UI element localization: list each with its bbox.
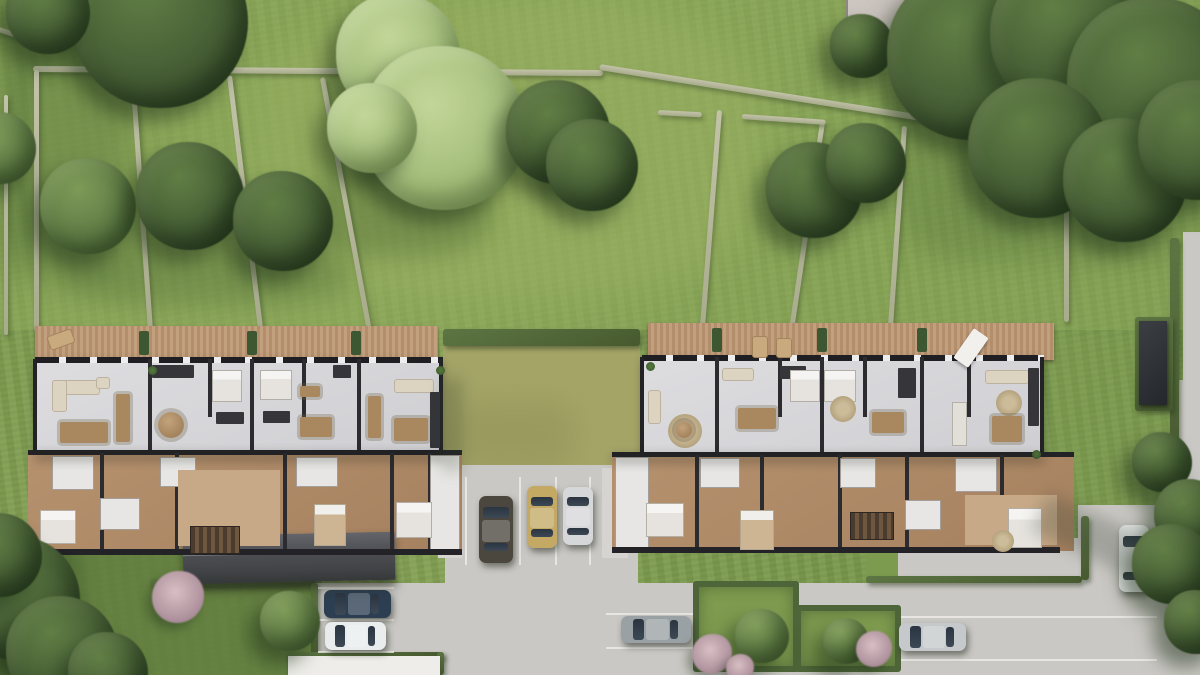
hedge	[443, 329, 640, 346]
building-right-bathroom	[615, 457, 649, 549]
kdark-furniture	[263, 411, 290, 423]
stairs-furniture	[190, 526, 240, 554]
site-plan-render	[0, 0, 1200, 675]
rtable-furniture	[676, 422, 692, 438]
table-furniture	[60, 422, 108, 443]
sofa-furniture	[96, 377, 110, 389]
building-left-lower-wall	[283, 453, 287, 552]
car-windshield	[335, 593, 346, 614]
parked-car	[621, 616, 691, 643]
car-rear-window	[368, 626, 375, 646]
table-furniture	[300, 417, 332, 437]
deck-planter	[139, 331, 149, 355]
car-roof	[347, 625, 367, 647]
building-left-mid-wall	[28, 450, 462, 455]
building-right-end-wall	[640, 357, 644, 457]
plant-furniture	[148, 366, 157, 375]
kdark-furniture	[1028, 368, 1039, 426]
deck-planter	[247, 331, 257, 355]
bedtan-furniture	[314, 504, 346, 546]
building-left-bathroom	[430, 455, 460, 551]
lounger-furniture	[752, 336, 768, 358]
car-windshield	[335, 625, 345, 646]
bedtan-furniture	[740, 510, 774, 550]
building-right-end-wall	[1040, 357, 1044, 457]
parking-line	[318, 587, 394, 589]
sofa-furniture	[394, 379, 434, 393]
parking-line	[519, 477, 521, 565]
car-rear-window	[371, 594, 379, 614]
kdark-furniture	[898, 368, 916, 398]
tree	[826, 123, 906, 203]
deck-planter	[712, 328, 722, 352]
sofa-furniture	[52, 380, 67, 412]
car-rear-window	[531, 529, 553, 536]
kdark-furniture	[216, 412, 244, 424]
sofa-furniture	[648, 390, 661, 424]
parked-car	[325, 622, 386, 650]
car-roof	[348, 593, 369, 615]
bed-furniture	[212, 370, 242, 402]
sofa-furniture	[722, 368, 754, 381]
building-left-rear-wall	[28, 549, 462, 555]
kdark-furniture	[152, 365, 194, 378]
building-right-party-wall	[715, 357, 719, 457]
tree	[327, 83, 417, 173]
parked-car	[479, 496, 513, 563]
building-right-party-wall	[920, 357, 924, 457]
deck-planter	[917, 328, 927, 352]
deck-planter	[351, 331, 361, 355]
tree	[260, 591, 320, 651]
car-rear-window	[484, 543, 508, 551]
flowering-bush	[726, 654, 754, 675]
rug-furniture	[992, 530, 1014, 552]
building-left-lower-wall	[390, 453, 394, 552]
parked-car	[563, 487, 593, 545]
car-windshield	[633, 619, 644, 640]
car-roof	[482, 520, 509, 541]
parking-line	[606, 647, 694, 649]
stairs-furniture	[850, 512, 894, 540]
parked-car	[324, 590, 391, 618]
parking-line	[318, 619, 394, 621]
kdark-furniture	[333, 365, 351, 378]
parking-line	[893, 616, 1157, 618]
deck-planter	[817, 328, 827, 352]
building-left-end-wall	[33, 359, 37, 455]
building-right-rear-wall	[612, 547, 1060, 553]
sofa-furniture	[985, 370, 1029, 384]
table-furniture	[300, 386, 320, 397]
rug-furniture	[996, 390, 1022, 416]
car-rear-window	[946, 627, 954, 647]
tree	[830, 14, 894, 78]
car-rear-window	[567, 528, 589, 535]
building-right-lower-wall	[695, 455, 699, 551]
parking-line	[893, 659, 1157, 661]
building-right-party-wall	[863, 357, 867, 417]
paved-road	[1183, 232, 1200, 392]
tree	[136, 142, 244, 250]
building-right-bathroom	[700, 458, 740, 488]
tree	[233, 171, 333, 271]
car-roof	[646, 619, 668, 641]
table-furniture	[738, 408, 776, 429]
building-right-mid-wall	[612, 452, 1074, 457]
stone-wall	[34, 70, 39, 332]
rtable-furniture	[158, 412, 184, 438]
lounger-furniture	[776, 338, 792, 358]
tree	[546, 119, 638, 211]
building-left-bathroom	[52, 456, 94, 490]
parked-car	[899, 623, 966, 651]
table-furniture	[368, 396, 381, 438]
table-furniture	[992, 416, 1022, 442]
building-right-front-wall	[642, 355, 1044, 361]
tree	[40, 158, 136, 254]
car-windshield	[910, 626, 921, 647]
hedge	[866, 576, 1082, 583]
bed-furniture	[40, 510, 76, 544]
parking-line	[606, 613, 694, 615]
car-windshield	[567, 497, 590, 506]
car-roof	[923, 626, 944, 648]
parking-line	[318, 651, 394, 653]
building-right-bathroom	[840, 458, 876, 488]
table-furniture	[394, 418, 428, 441]
grass-patch	[455, 400, 575, 470]
bed-furniture	[396, 502, 432, 538]
hedge	[1081, 516, 1089, 580]
car-roof	[566, 508, 590, 527]
kdark-furniture	[430, 392, 440, 448]
car-roof	[530, 508, 554, 528]
building-right-bathroom	[905, 500, 941, 530]
island-furniture	[952, 402, 967, 446]
building-left-party-wall	[357, 359, 361, 455]
building-left-party-wall	[250, 359, 254, 455]
table-furniture	[116, 394, 130, 442]
garden-shed-roof	[1139, 321, 1167, 405]
building-left-bathroom	[296, 457, 338, 487]
parked-car	[527, 486, 557, 548]
parking-line	[465, 477, 467, 565]
plant-furniture	[646, 362, 655, 371]
bed-furniture	[260, 370, 292, 400]
building-right-bathroom	[955, 458, 997, 492]
car-rear-window	[670, 620, 678, 639]
rug-furniture	[830, 396, 856, 422]
building-left-front-wall	[35, 357, 443, 363]
bed-furniture	[646, 503, 684, 537]
plant-furniture	[436, 366, 445, 375]
building-left-bathroom	[100, 498, 140, 530]
bed-furniture	[790, 370, 820, 402]
table-furniture	[872, 412, 904, 433]
car-windshield	[531, 497, 554, 507]
plant-furniture	[1032, 450, 1041, 459]
car-windshield	[483, 507, 509, 518]
garage-flat-roof	[288, 656, 440, 675]
